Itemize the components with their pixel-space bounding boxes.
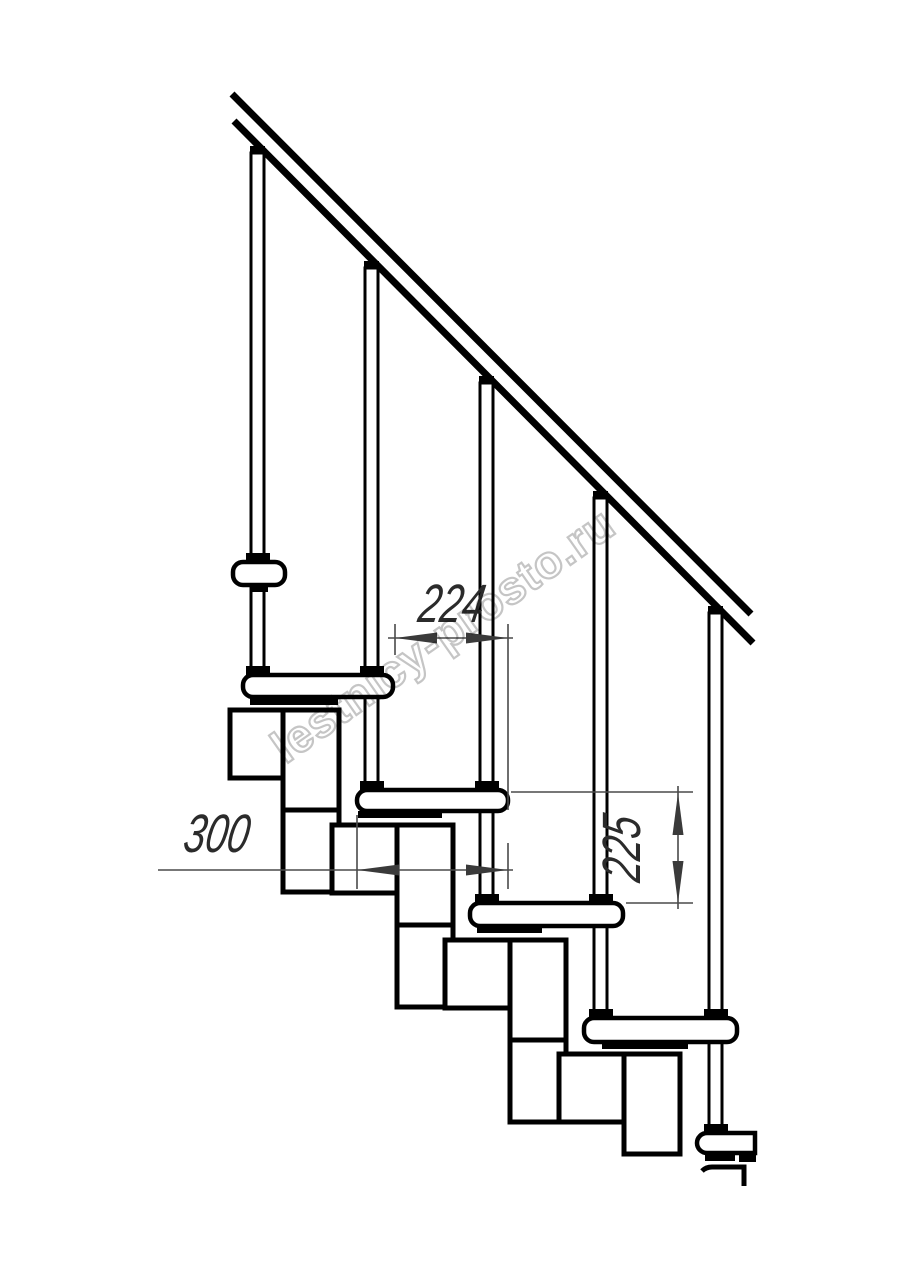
tread-2 [357,790,508,811]
arrow-down [673,861,684,903]
floor-break-line [702,1167,744,1186]
under-tread-bar [602,1042,688,1049]
baluster-clamp [475,894,499,903]
baluster-2-rail-cap [364,261,379,269]
under-tread-bar [477,926,542,933]
baluster-4-rail-cap [593,491,608,499]
baluster-clamp [246,553,270,562]
baluster-clamp [589,894,613,903]
baluster-clamp [704,1009,728,1018]
module-3 [445,940,566,1122]
dimension-tread-depth-label: 300 [179,804,255,864]
under-tread-bar [705,1153,735,1161]
watermark-text: lestnicy-prosto.ru [261,497,624,773]
baluster-clamp [360,781,384,790]
staircase-technical-drawing: 224 300 225 lestnicy-prosto.ru [0,0,914,1280]
under-tread-bar [358,811,442,818]
arrow-up [673,793,684,835]
tread-3 [470,903,623,926]
baluster-4 [593,491,608,1020]
dimension-riser-height-label: 225 [592,810,652,887]
baluster-clamp [246,666,270,675]
baluster-5 [708,606,723,1134]
baluster-3-rail-cap [479,376,494,384]
module-4 [559,1054,680,1154]
tread-0-stub [233,562,285,585]
tread-5-floor-plate [697,1133,755,1153]
baluster-5-rail-cap [708,606,723,614]
baluster-1-rail-cap [250,146,265,154]
staircase-drawing-page: 224 300 225 lestnicy-prosto.ru [0,0,914,1280]
baluster-clamp [589,1009,613,1018]
module-2 [332,825,453,1007]
baluster-clamp [704,1124,728,1133]
support-modules [230,710,680,1154]
under-tread-bar [739,1152,756,1162]
tread-4 [584,1018,737,1042]
baluster-clamp [475,781,499,790]
baluster-1 [250,146,265,676]
under-tread-bar [250,585,268,592]
